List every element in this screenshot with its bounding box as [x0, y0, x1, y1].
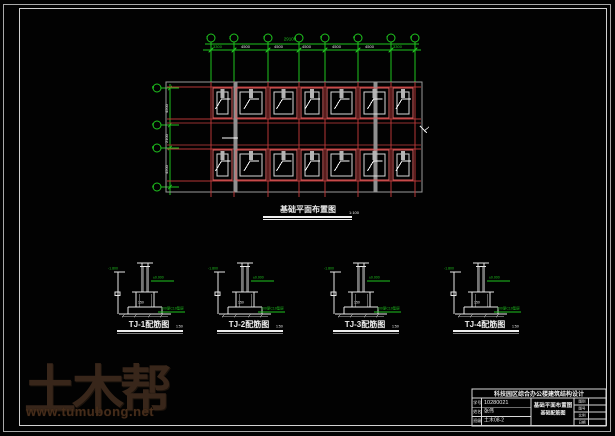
footing — [301, 150, 323, 180]
detail-title: TJ-2配筋图 — [217, 321, 281, 329]
top-dimension-text: 4500 — [273, 45, 284, 49]
titleblock-value-name: 张伟 — [484, 409, 494, 414]
footing — [213, 150, 232, 180]
footing — [213, 88, 232, 118]
footing — [270, 88, 297, 118]
detail-scale: 1:50 — [176, 325, 183, 329]
titleblock-label-class: 班级 — [473, 419, 482, 423]
plan-scale: 1:100 — [349, 211, 359, 215]
titleblock-label-sheet-no: 图号 — [575, 407, 589, 411]
cad-sheet: { "plan": { "title": "基础平面布置图", "scale":… — [0, 0, 615, 436]
detail-blinding-note: 100厚C10垫层 — [377, 307, 400, 311]
detail-dimension-text: 150 — [238, 301, 244, 305]
detail-dimension-text: 150 — [354, 301, 360, 305]
detail-dimension-text: 150 — [138, 301, 144, 305]
detail-scale: 1:50 — [512, 325, 519, 329]
footing — [327, 88, 356, 118]
detail-title: TJ-1配筋图 — [117, 321, 181, 329]
footing — [236, 150, 266, 180]
axis-bubble-label-top: 8 — [407, 36, 415, 40]
detail-scale: 1:50 — [276, 325, 283, 329]
titleblock-value-student-id: 10280021 — [484, 400, 508, 406]
axis-bubble-label-top: 3 — [260, 36, 268, 40]
detail-title: TJ-3配筋图 — [333, 321, 397, 329]
footing — [327, 150, 356, 180]
detail-rebar-note-top: ±0.000 — [369, 276, 380, 280]
detail-rebar-note-top: ±0.000 — [153, 276, 164, 280]
left-dimension-text: 4500 — [165, 165, 169, 174]
axis-bubble-label-left: A — [149, 185, 157, 189]
top-dimension-text: 4500 — [364, 45, 375, 49]
titleblock-value-class: 土木08-2 — [484, 418, 504, 423]
titleblock-drawing-title-line2: 基础配筋图 — [532, 411, 574, 416]
axis-bubble-label-top: 2 — [226, 36, 234, 40]
top-dimension-text: 4500 — [301, 45, 312, 49]
titleblock-label-name: 姓名 — [473, 410, 482, 414]
axis-grid — [153, 34, 421, 197]
top-dimension-text: 3300 — [212, 45, 223, 49]
titleblock-label-student-id: 学号 — [473, 401, 482, 405]
detail-dimension-text: 150 — [474, 301, 480, 305]
footing — [393, 150, 413, 180]
axis-bubble-label-left: B — [149, 146, 157, 150]
axis-bubble-label-top: 6 — [350, 36, 358, 40]
detail-scale: 1:50 — [392, 325, 399, 329]
detail-blinding-note: 100厚C10垫层 — [497, 307, 520, 311]
detail-elevation-note: -1.800 — [208, 267, 218, 271]
titleblock-label-scale: 比例 — [575, 414, 589, 418]
detail-elevation-note: -1.800 — [444, 267, 454, 271]
axis-bubble-label-top: 1 — [203, 36, 211, 40]
titleblock-label-date: 日期 — [575, 421, 589, 425]
cad-drawing-linework — [0, 0, 615, 436]
footing — [236, 88, 266, 118]
left-dimension-text: 4500 — [165, 104, 169, 113]
top-dimension-text: 3300 — [392, 45, 403, 49]
axis-bubble-label-left: C — [149, 123, 157, 127]
detail-blinding-note: 100厚C10垫层 — [261, 307, 284, 311]
top-total-dimension: 29100 — [283, 37, 297, 42]
footing — [270, 150, 297, 180]
axis-bubble-label-top: 7 — [383, 36, 391, 40]
detail-title: TJ-4配筋图 — [453, 321, 517, 329]
top-dimension-text: 4500 — [331, 45, 342, 49]
detail-elevation-note: -1.800 — [324, 267, 334, 271]
left-dimension-text: 2100 — [165, 134, 169, 143]
detail-rebar-note-top: ±0.000 — [489, 276, 500, 280]
titleblock-label-sheet-type: 图别 — [575, 400, 589, 404]
detail-blinding-note: 100厚C10垫层 — [161, 307, 184, 311]
axis-bubble-label-top: 5 — [317, 36, 325, 40]
footing — [393, 88, 413, 118]
plan-title: 基础平面布置图 — [258, 206, 358, 214]
detail-elevation-note: -1.800 — [108, 267, 118, 271]
top-dimension-text: 4500 — [240, 45, 251, 49]
detail-rebar-note-top: ±0.000 — [253, 276, 264, 280]
axis-bubble-label-left: D — [149, 86, 157, 90]
footing — [301, 88, 323, 118]
titleblock-drawing-title-line1: 基础平面布置图 — [532, 403, 574, 409]
titleblock-header: 科技园区综合办公楼建筑结构设计 — [473, 391, 605, 397]
